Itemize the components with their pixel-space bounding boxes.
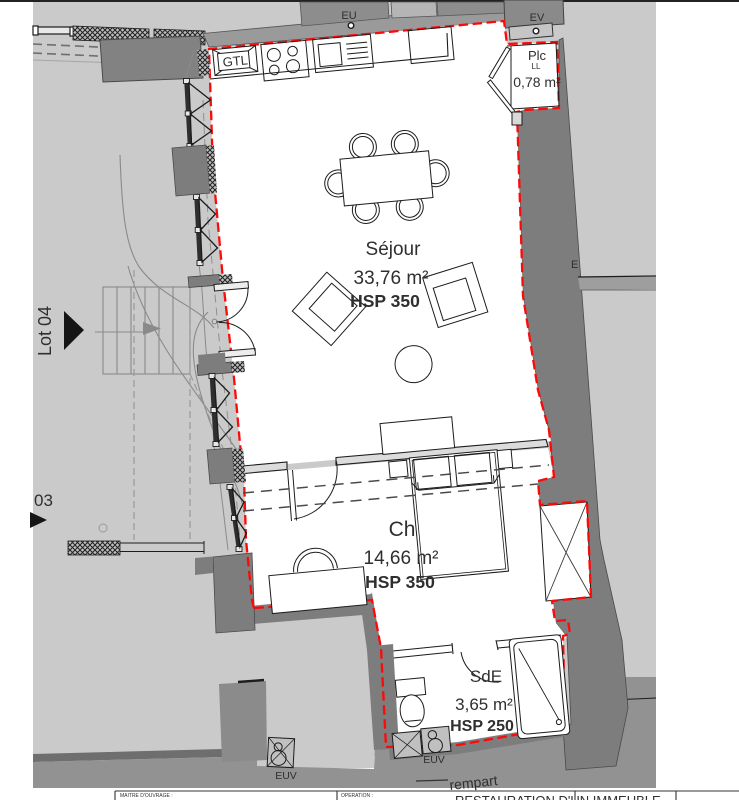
- svg-text:14,66 m²: 14,66 m²: [364, 548, 439, 569]
- svg-text:HSP 250: HSP 250: [450, 718, 514, 735]
- svg-text:HSP 350: HSP 350: [350, 291, 420, 311]
- svg-text:OPERATION :: OPERATION :: [341, 793, 373, 799]
- svg-text:SdE: SdE: [470, 667, 502, 686]
- svg-text:3,65 m²: 3,65 m²: [455, 695, 513, 714]
- svg-text:EU: EU: [341, 10, 356, 22]
- svg-text:RESTAURATION D'UN IMMEUBLE: RESTAURATION D'UN IMMEUBLE: [455, 793, 661, 800]
- svg-text:Séjour: Séjour: [366, 239, 422, 260]
- svg-text:Ch: Ch: [389, 518, 416, 541]
- svg-text:EV: EV: [530, 12, 545, 24]
- svg-text:0,78 m²: 0,78 m²: [513, 74, 561, 90]
- svg-text:03: 03: [34, 491, 53, 510]
- svg-text:EUV: EUV: [423, 754, 445, 766]
- svg-text:HSP 350: HSP 350: [365, 572, 435, 592]
- svg-text:MAITRE D'OUVRAGE :: MAITRE D'OUVRAGE :: [120, 793, 173, 799]
- svg-text:33,76 m²: 33,76 m²: [354, 268, 429, 289]
- svg-text:Plc: Plc: [528, 48, 547, 63]
- svg-text:EUV: EUV: [275, 770, 297, 782]
- svg-text:E: E: [571, 259, 578, 271]
- svg-text:LL: LL: [532, 62, 541, 71]
- svg-text:GTL: GTL: [222, 52, 249, 69]
- svg-text:Lot 04: Lot 04: [35, 306, 55, 356]
